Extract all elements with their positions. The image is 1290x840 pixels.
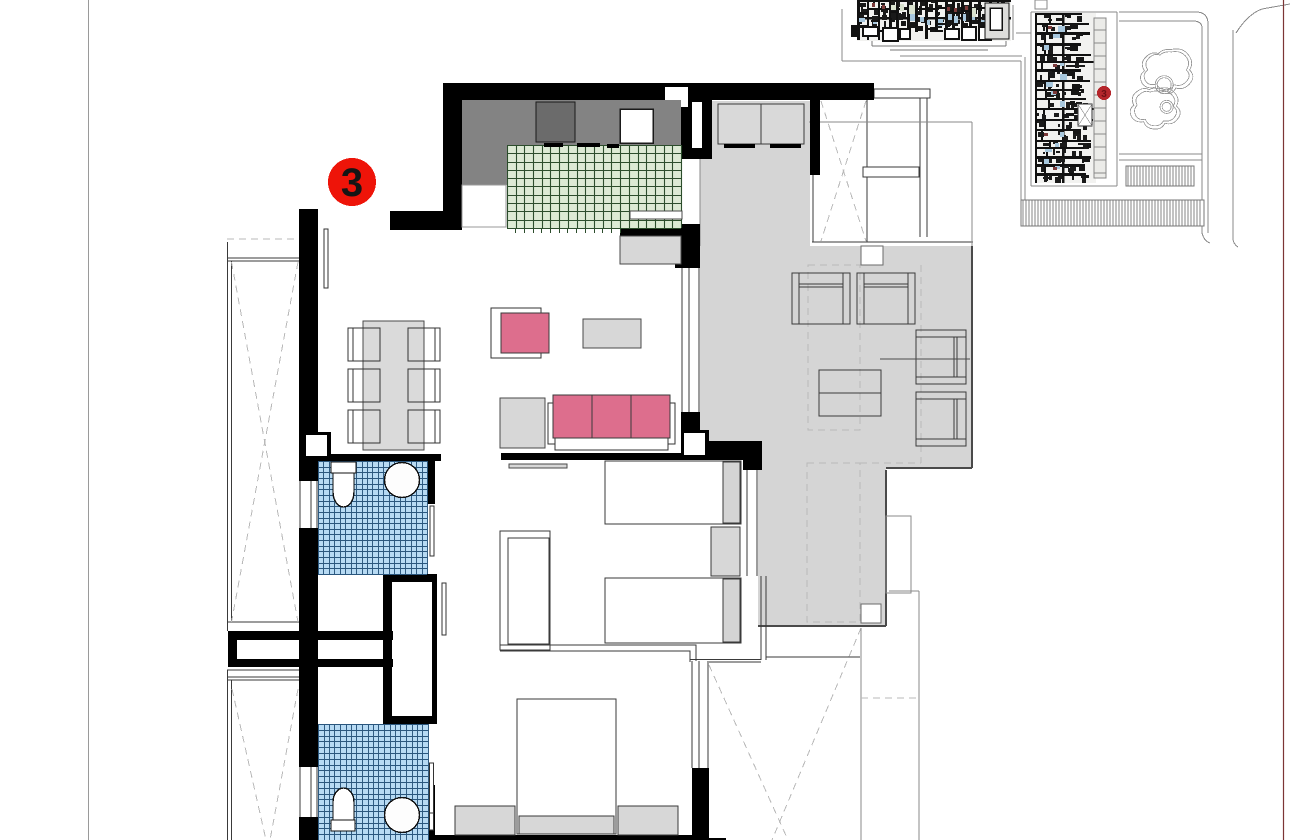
svg-text:3: 3: [341, 161, 363, 205]
svg-text:3: 3: [1101, 89, 1107, 100]
